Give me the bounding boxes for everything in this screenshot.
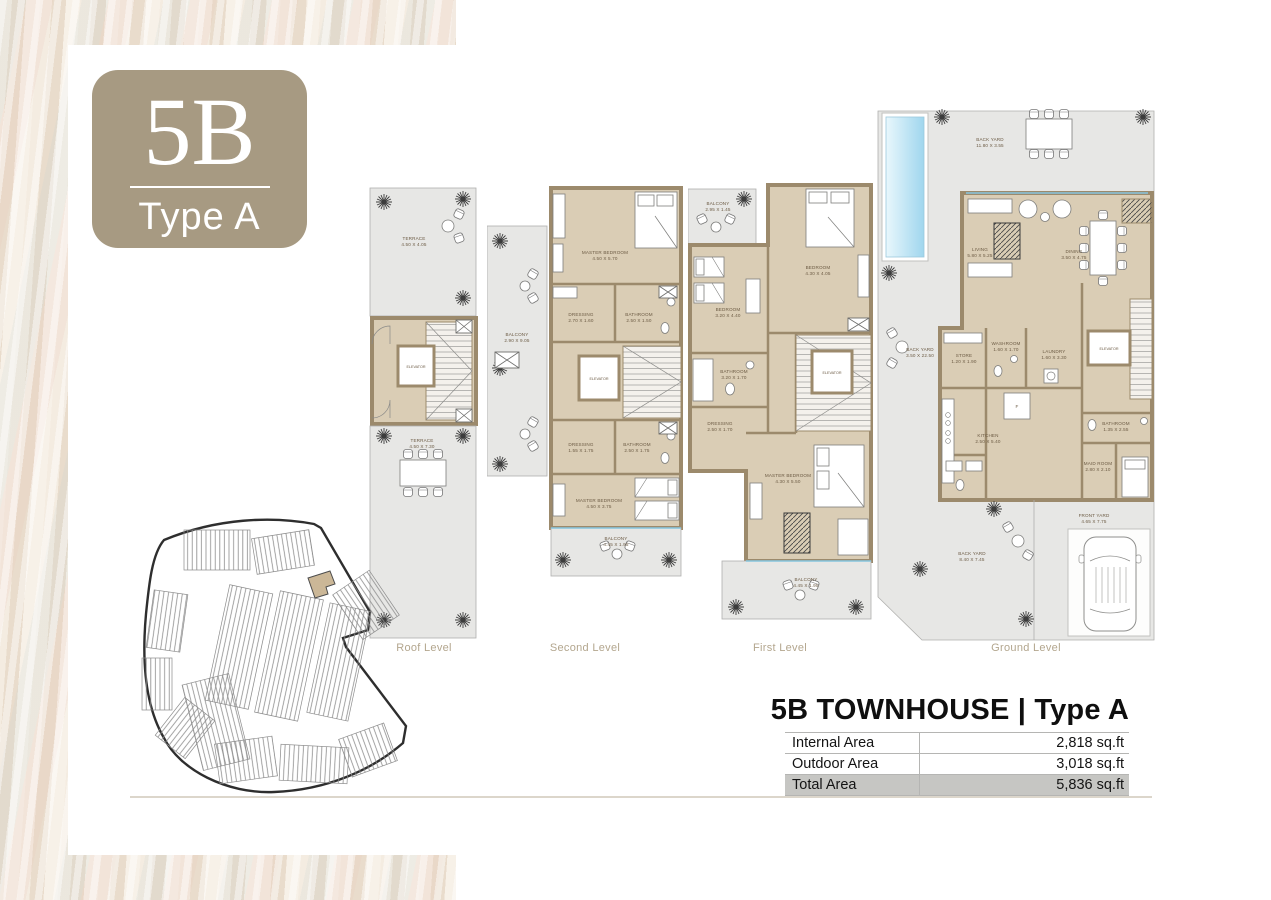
- elevator-label: ELEVATOR: [589, 377, 608, 381]
- table-row-outdoor: Outdoor Area 3,018 sq.ft: [785, 754, 1129, 775]
- first-level-plan: BALCONY 2.95 X 1.45 BEDROOM 3.20 X 4.40 …: [688, 183, 873, 623]
- room-dims: 2.50 X 1.50: [626, 318, 651, 323]
- bottom-divider-line: [130, 796, 1152, 798]
- row-value: 3,018 sq.ft: [920, 754, 1129, 774]
- dining-table: [400, 460, 446, 486]
- room-dims: 8.40 X 7.45: [959, 557, 984, 562]
- room-label: BALCONY: [706, 201, 729, 206]
- toilet: [956, 480, 964, 491]
- table-row-total: Total Area 5,836 sq.ft: [785, 775, 1129, 796]
- unit-code: 5B: [92, 80, 307, 184]
- room-label: DRESSING: [707, 421, 732, 426]
- brochure-page: 5B Type A TERRACE 4.50 X 4.05 ELEVATOR T…: [0, 0, 1271, 900]
- elevator-label: ELEVATOR: [1099, 347, 1118, 351]
- row-label: Outdoor Area: [785, 754, 920, 774]
- toilet: [726, 383, 735, 395]
- armoire: [838, 519, 868, 555]
- unit-type: Type A: [92, 196, 307, 239]
- room-dims: 2.50 X 1.75: [624, 448, 649, 453]
- room-label: TERRACE: [410, 438, 433, 443]
- room-dims: 4.45 X 1.95: [603, 542, 628, 547]
- room-dims: 1.60 X 1.70: [993, 347, 1018, 352]
- elevator-label: ELEVATOR: [822, 371, 841, 375]
- room-label: BACK YARD: [958, 551, 986, 556]
- caption-first-level: First Level: [710, 642, 850, 654]
- room-label: BEDROOM: [806, 265, 831, 270]
- desk: [553, 244, 563, 272]
- dining-table: [1090, 221, 1116, 275]
- room-dims: 1.20 X 1.90: [951, 359, 976, 364]
- room-dims: 2.95 X 1.45: [705, 207, 730, 212]
- community-site-plan: [122, 508, 422, 808]
- room-dims: 4.45 X 1.95: [793, 583, 818, 588]
- room-dims: 2.50 X 5.40: [975, 439, 1000, 444]
- room-dims: 2.90 X 9.05: [504, 338, 529, 343]
- desk: [746, 279, 760, 313]
- room-label: BACK YARD: [976, 137, 1004, 142]
- maid-bed: [1122, 457, 1148, 497]
- room-label: BACK YARD: [906, 347, 934, 352]
- caption-ground-level: Ground Level: [956, 642, 1096, 654]
- room-label: DRESSING: [568, 442, 593, 447]
- toilet: [661, 453, 669, 464]
- table-row-internal: Internal Area 2,818 sq.ft: [785, 732, 1129, 754]
- room-dims: 4.50 X 3.75: [586, 504, 611, 509]
- row-value: 2,818 sq.ft: [920, 733, 1129, 753]
- room-dims: 3.20 X 4.40: [715, 313, 740, 318]
- outdoor-dining-table: [1026, 119, 1072, 149]
- room-label: BALCONY: [604, 536, 627, 541]
- summary-title: 5B TOWNHOUSE | Type A: [770, 694, 1129, 727]
- room-label: FRONT YARD: [1079, 513, 1110, 518]
- row-value: 5,836 sq.ft: [920, 775, 1129, 795]
- sink: [746, 361, 754, 369]
- room-dims: 3.50 X 4.75: [1061, 255, 1086, 260]
- washing-machine: [1044, 369, 1058, 383]
- store-shelf: [944, 333, 982, 343]
- room-label: LIVING: [972, 247, 988, 252]
- bathtub: [693, 359, 713, 401]
- swimming-pool: [886, 117, 924, 257]
- area-summary-table: Internal Area 2,818 sq.ft Outdoor Area 3…: [785, 732, 1129, 796]
- caption-second-level: Second Level: [515, 642, 655, 654]
- sink: [1141, 418, 1148, 425]
- double-bed: [806, 189, 854, 247]
- car: [1079, 537, 1141, 631]
- side-balcony: [487, 226, 547, 476]
- room-label: TERRACE: [402, 236, 425, 241]
- room-dims: 1.55 X 1.75: [568, 448, 593, 453]
- fridge-label: F: [1016, 404, 1019, 409]
- elevator-label: ELEVATOR: [406, 365, 425, 369]
- sink: [1011, 356, 1018, 363]
- room-dims: 2.50 X 1.70: [707, 427, 732, 432]
- room-dims: 3.20 X 1.70: [721, 375, 746, 380]
- toilet: [994, 366, 1002, 377]
- caption-roof-level: Roof Level: [354, 642, 494, 654]
- room-label: STORE: [956, 353, 973, 358]
- room-label: BATHROOM: [1102, 421, 1129, 426]
- room-label: KITCHEN: [977, 433, 998, 438]
- unit-badge: 5B Type A: [92, 70, 307, 248]
- room-label: MASTER BEDROOM: [576, 498, 622, 503]
- stair-landing: [1122, 199, 1152, 223]
- room-label: BATHROOM: [623, 442, 650, 447]
- room-label: DINING: [1066, 249, 1083, 254]
- terrace-table: [442, 220, 454, 232]
- master-bed: [814, 445, 864, 507]
- room-label: BALCONY: [794, 577, 817, 582]
- room-label: BATHROOM: [720, 369, 747, 374]
- room-label: BALCONY: [505, 332, 528, 337]
- room-dims: 11.80 X 3.55: [976, 143, 1004, 148]
- room-dims: 4.50 X 4.05: [401, 242, 426, 247]
- bottom-balcony: [722, 561, 871, 619]
- vanity: [946, 461, 962, 471]
- double-bed: [635, 192, 677, 248]
- ground-level-plan: BACK YARD 11.80 X 3.55 BACK YARD 3.50 X …: [876, 103, 1158, 653]
- room-label: DRESSING: [568, 312, 593, 317]
- room-dims: 3.50 X 22.50: [906, 353, 934, 358]
- second-level-plan: BALCONY 2.90 X 9.05 MASTER BEDROOM 4.50 …: [487, 186, 683, 578]
- wardrobe: [858, 255, 869, 297]
- badge-divider: [130, 186, 270, 188]
- row-label: Internal Area: [785, 733, 920, 753]
- rug: [994, 223, 1020, 259]
- room-dims: 4.50 X 7.30: [409, 444, 434, 449]
- closet: [553, 287, 577, 298]
- desk: [553, 484, 565, 516]
- room-label: MASTER BEDROOM: [765, 473, 811, 478]
- row-label: Total Area: [785, 775, 920, 795]
- sink: [667, 298, 675, 306]
- toilet: [1088, 420, 1096, 431]
- toilet: [661, 323, 669, 334]
- dresser: [750, 483, 762, 519]
- room-dims: 1.35 X 2.55: [1103, 427, 1128, 432]
- room-label: WASHROOM: [991, 341, 1020, 346]
- rug: [784, 513, 810, 553]
- room-label: MASTER BEDROOM: [582, 250, 628, 255]
- room-dims: 2.80 X 2.10: [1085, 467, 1110, 472]
- room-dims: 1.60 X 3.30: [1041, 355, 1066, 360]
- room-label: LAUNDRY: [1043, 349, 1066, 354]
- vanity: [966, 461, 982, 471]
- room-label: BEDROOM: [716, 307, 741, 312]
- room-dims: 4.50 X 5.70: [592, 256, 617, 261]
- wardrobe: [553, 194, 565, 238]
- room-dims: 4.65 X 7.75: [1081, 519, 1106, 524]
- room-dims: 4.30 X 4.05: [805, 271, 830, 276]
- room-label: MAID ROOM: [1084, 461, 1112, 466]
- room-dims: 5.80 X 5.25: [967, 253, 992, 258]
- room-dims: 4.30 X 5.50: [775, 479, 800, 484]
- room-dims: 2.70 X 1.60: [568, 318, 593, 323]
- room-label: BATHROOM: [625, 312, 652, 317]
